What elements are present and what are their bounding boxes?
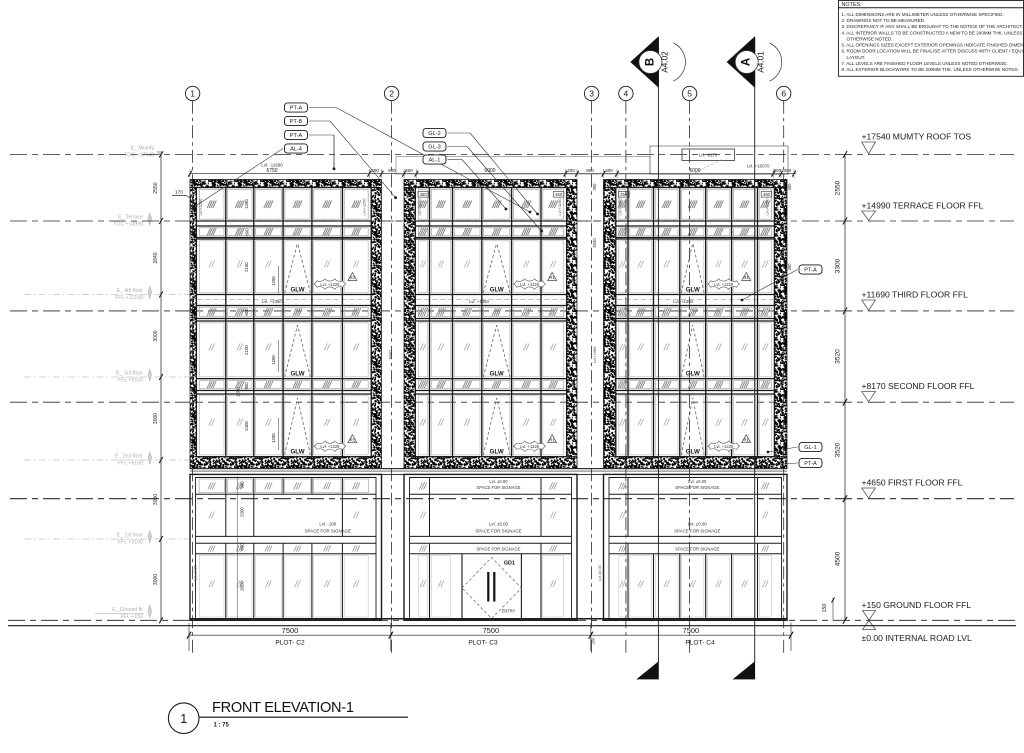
svg-text:6000: 6000 bbox=[689, 168, 700, 174]
svg-text:Lvl. ±0.00: Lvl. ±0.00 bbox=[688, 522, 708, 527]
svg-text:Lvl.+1250: Lvl.+1250 bbox=[362, 198, 367, 216]
svg-text:±0.00 INTERNAL ROAD LVL: ±0.00 INTERNAL ROAD LVL bbox=[862, 633, 972, 643]
svg-text:2400: 2400 bbox=[244, 421, 249, 431]
svg-text:E_ Mumty: E_ Mumty bbox=[131, 146, 155, 152]
svg-text:2. DRAWINGS NOT TO BE MEASURED: 2. DRAWINGS NOT TO BE MEASURED. bbox=[842, 18, 926, 23]
svg-text:+14990 TERRACE FLOOR FFL: +14990 TERRACE FLOOR FFL bbox=[862, 201, 984, 211]
svg-text:Lvl. +1225: Lvl. +1225 bbox=[714, 444, 734, 449]
svg-text:300: 300 bbox=[567, 168, 575, 173]
svg-text:FRONT ELEVATION-1: FRONT ELEVATION-1 bbox=[212, 700, 354, 716]
svg-text:2100: 2100 bbox=[244, 345, 249, 355]
svg-text:Lvl. +1225: Lvl. +1225 bbox=[320, 444, 340, 449]
svg-text:170: 170 bbox=[175, 190, 183, 196]
svg-text:300: 300 bbox=[787, 183, 792, 191]
svg-text:1280: 1280 bbox=[236, 387, 241, 397]
svg-text:7. ALL LEVELS ARE FINISHED FLO: 7. ALL LEVELS ARE FINISHED FLOOR LEVELS … bbox=[842, 61, 1008, 66]
svg-text:Lvl. +1350: Lvl. +1350 bbox=[469, 299, 490, 304]
svg-text:3: 3 bbox=[589, 89, 594, 99]
svg-text:450: 450 bbox=[620, 192, 628, 197]
svg-text:GL-3: GL-3 bbox=[428, 145, 440, 151]
svg-text:2: 2 bbox=[389, 89, 394, 99]
svg-text:450: 450 bbox=[420, 192, 428, 197]
svg-text:GLW: GLW bbox=[490, 287, 504, 294]
svg-text:7500: 7500 bbox=[482, 626, 499, 635]
svg-text:R1: R1 bbox=[743, 275, 749, 280]
svg-text:FFL +3150: FFL +3150 bbox=[118, 540, 143, 546]
svg-text:E_ 3rd floor: E_ 3rd floor bbox=[116, 371, 143, 377]
svg-text:SPACE FOR SIGNAGE: SPACE FOR SIGNAGE bbox=[476, 485, 520, 490]
svg-text:ENTRY: ENTRY bbox=[502, 609, 516, 614]
svg-text:PT-A: PT-A bbox=[290, 106, 303, 112]
svg-text:AL-4: AL-4 bbox=[290, 147, 302, 153]
svg-text:1250: 1250 bbox=[271, 433, 276, 443]
svg-text:FFL +6150: FFL +6150 bbox=[118, 461, 143, 467]
svg-text:3520: 3520 bbox=[835, 349, 842, 364]
svg-text:Lvl. -11690: Lvl. -11690 bbox=[261, 163, 283, 168]
svg-text:R1: R1 bbox=[350, 275, 356, 280]
svg-text:3000: 3000 bbox=[153, 330, 159, 341]
svg-text:450: 450 bbox=[784, 168, 792, 173]
svg-text:2800: 2800 bbox=[240, 581, 245, 591]
svg-text:OTHERWISE NOTED.: OTHERWISE NOTED. bbox=[842, 36, 893, 41]
svg-text:+11690 THIRD FLOOR FFL: +11690 THIRD FLOOR FFL bbox=[862, 290, 969, 300]
svg-text:3000: 3000 bbox=[153, 413, 159, 424]
svg-text:E_ Terrace: E_ Terrace bbox=[118, 215, 143, 221]
svg-text:Lvl.+1250: Lvl.+1250 bbox=[198, 198, 203, 216]
svg-text:GLW: GLW bbox=[290, 287, 304, 294]
svg-text:+17540 MUMTY ROOF TOS: +17540 MUMTY ROOF TOS bbox=[862, 132, 972, 142]
svg-text:6. ROOM DOOR LOCATION WILL BE: 6. ROOM DOOR LOCATION WILL BE FINALISE A… bbox=[842, 49, 1024, 54]
svg-text:300: 300 bbox=[773, 168, 781, 173]
svg-text:Lvl.+1080: Lvl.+1080 bbox=[593, 347, 597, 364]
svg-text:Lvl. -100: Lvl. -100 bbox=[319, 522, 336, 527]
svg-text:Lvl. ±0.00: Lvl. ±0.00 bbox=[489, 522, 509, 527]
svg-text:Lvl.+1250: Lvl.+1250 bbox=[765, 198, 770, 216]
svg-text:4: 4 bbox=[624, 89, 629, 99]
svg-text:PT-A: PT-A bbox=[290, 133, 303, 139]
svg-text:3. DISCREPANCY IF ANY SHALL BE: 3. DISCREPANCY IF ANY SHALL BE BROUGHT T… bbox=[842, 24, 1024, 29]
svg-text:Lvl.±0.00: Lvl.±0.00 bbox=[194, 565, 198, 580]
svg-text:FFL +12150: FFL +12150 bbox=[115, 295, 143, 301]
svg-text:PT-B: PT-B bbox=[290, 119, 303, 125]
svg-text:600: 600 bbox=[240, 543, 245, 551]
svg-text:B: B bbox=[644, 58, 656, 66]
svg-text:E_ Ground flr: E_ Ground flr bbox=[112, 607, 143, 613]
svg-text:1250: 1250 bbox=[271, 355, 276, 365]
svg-text:GLW: GLW bbox=[686, 449, 700, 456]
svg-text:GLW: GLW bbox=[686, 371, 700, 378]
svg-text:GD1: GD1 bbox=[504, 561, 515, 567]
svg-text:Lvl. +1350: Lvl. +1350 bbox=[673, 299, 694, 304]
svg-text:GLW: GLW bbox=[290, 371, 304, 378]
svg-text:300: 300 bbox=[405, 168, 413, 173]
svg-text:8. ALL EXTERIOR BLOCKWORK TO B: 8. ALL EXTERIOR BLOCKWORK TO BE 200MM TH… bbox=[842, 67, 1019, 72]
svg-text:PLOT- C3: PLOT- C3 bbox=[468, 640, 498, 647]
svg-text:Lvl.+1250: Lvl.+1250 bbox=[417, 198, 422, 216]
svg-text:SPACE FOR SIGNAGE: SPACE FOR SIGNAGE bbox=[674, 529, 720, 534]
svg-text:Lvl. +1225: Lvl. +1225 bbox=[320, 282, 340, 287]
svg-text:600: 600 bbox=[244, 308, 249, 316]
svg-text:PT-A: PT-A bbox=[804, 461, 817, 467]
svg-text:7500: 7500 bbox=[683, 626, 700, 635]
svg-text:5: 5 bbox=[687, 89, 692, 99]
svg-text:R1: R1 bbox=[350, 437, 356, 442]
svg-text:Lvl. +1225: Lvl. +1225 bbox=[520, 444, 540, 449]
svg-text:GLW: GLW bbox=[686, 287, 700, 294]
svg-text:GL-2: GL-2 bbox=[428, 131, 440, 137]
svg-text:Lvl. ±0.00: Lvl. ±0.00 bbox=[489, 479, 508, 484]
svg-text:R1: R1 bbox=[549, 275, 555, 280]
svg-text:R1: R1 bbox=[743, 437, 749, 442]
svg-text:Lvl. +10070: Lvl. +10070 bbox=[747, 164, 770, 169]
svg-text:450: 450 bbox=[763, 192, 771, 197]
svg-text:2150: 2150 bbox=[244, 262, 249, 272]
svg-text:A4.01: A4.01 bbox=[757, 51, 766, 73]
svg-text:300: 300 bbox=[787, 263, 792, 271]
svg-text:1 : 75: 1 : 75 bbox=[214, 723, 230, 729]
svg-text:5. ALL OPENINGS SIZES EXCEPT E: 5. ALL OPENINGS SIZES EXCEPT EXTERIOR OP… bbox=[842, 43, 1024, 48]
svg-text:900: 900 bbox=[240, 481, 245, 489]
svg-text:+8170 SECOND FLOOR FFL: +8170 SECOND FLOOR FFL bbox=[862, 381, 975, 391]
svg-text:E_ 2nd floor: E_ 2nd floor bbox=[115, 454, 143, 460]
svg-text:PLOT- C4: PLOT- C4 bbox=[685, 640, 715, 647]
svg-text:2300: 2300 bbox=[240, 507, 245, 517]
svg-text:AL-1: AL-1 bbox=[429, 158, 441, 164]
svg-text:FFL +150: FFL +150 bbox=[121, 614, 143, 620]
svg-text:NOTES:: NOTES: bbox=[842, 2, 862, 8]
svg-text:1250: 1250 bbox=[271, 276, 276, 286]
svg-text:SPACE FOR SIGNAGE: SPACE FOR SIGNAGE bbox=[675, 485, 719, 490]
svg-text:GLW: GLW bbox=[290, 449, 304, 456]
svg-text:300: 300 bbox=[592, 183, 597, 191]
svg-text:FFL +9150: FFL +9150 bbox=[118, 378, 143, 384]
svg-text:1: 1 bbox=[190, 89, 195, 99]
svg-text:4040: 4040 bbox=[388, 350, 393, 360]
svg-text:Lvl. -9170: Lvl. -9170 bbox=[699, 152, 718, 157]
svg-text:2550: 2550 bbox=[153, 182, 159, 193]
svg-text:SPACE FOR SIGNAGE: SPACE FOR SIGNAGE bbox=[476, 547, 520, 552]
svg-text:600: 600 bbox=[245, 228, 250, 236]
svg-text:900: 900 bbox=[586, 168, 594, 173]
svg-text:GL-1: GL-1 bbox=[804, 445, 816, 451]
svg-text:LAYOUT.: LAYOUT. bbox=[842, 55, 866, 60]
svg-text:E_ 1st floor: E_ 1st floor bbox=[117, 533, 144, 539]
svg-text:1280: 1280 bbox=[244, 199, 249, 209]
svg-text:Lvl. ±0.00: Lvl. ±0.00 bbox=[688, 479, 707, 484]
svg-text:6000: 6000 bbox=[484, 168, 495, 174]
svg-text:GLW: GLW bbox=[490, 449, 504, 456]
svg-text:SPACE FOR SIGNAGE: SPACE FOR SIGNAGE bbox=[475, 529, 521, 534]
svg-text:4040: 4040 bbox=[592, 238, 597, 248]
svg-text:3520: 3520 bbox=[835, 442, 842, 457]
svg-text:1. ALL DIMENSIONS ARE IN MILLI: 1. ALL DIMENSIONS ARE IN MILLIMETER UNLE… bbox=[842, 12, 1004, 17]
svg-text:SPACE FOR SIGNAGE: SPACE FOR SIGNAGE bbox=[305, 529, 351, 534]
svg-text:900: 900 bbox=[388, 168, 396, 173]
svg-text:TOC +17540: TOC +17540 bbox=[124, 153, 154, 159]
svg-text:Lvl. +1225: Lvl. +1225 bbox=[520, 282, 540, 287]
svg-text:7500: 7500 bbox=[282, 626, 299, 635]
svg-text:250: 250 bbox=[591, 637, 596, 645]
svg-text:PLOT- C2: PLOT- C2 bbox=[275, 640, 305, 647]
svg-text:4500: 4500 bbox=[835, 551, 842, 566]
svg-text:+4650 FIRST FLOOR FFL: +4650 FIRST FLOOR FFL bbox=[862, 478, 963, 488]
svg-text:Lvl.+1250: Lvl.+1250 bbox=[557, 198, 562, 216]
svg-text:1: 1 bbox=[180, 711, 187, 726]
svg-text:6: 6 bbox=[781, 89, 786, 99]
svg-text:GLW: GLW bbox=[490, 371, 504, 378]
svg-text:4. ALL INTERIOR WALLS TO BE CO: 4. ALL INTERIOR WALLS TO BE CONSTRUCTED … bbox=[842, 30, 1023, 35]
svg-text:Lvl.±0.00: Lvl.±0.00 bbox=[598, 565, 602, 580]
svg-text:2550: 2550 bbox=[835, 180, 842, 195]
svg-text:900: 900 bbox=[244, 382, 249, 390]
svg-text:2840: 2840 bbox=[153, 252, 159, 263]
svg-text:TOC +14990: TOC +14990 bbox=[113, 222, 143, 228]
svg-text:Lvl. +1350: Lvl. +1350 bbox=[262, 299, 283, 304]
svg-text:6750: 6750 bbox=[266, 168, 277, 174]
svg-text:R1: R1 bbox=[549, 437, 555, 442]
svg-text:PT-A: PT-A bbox=[804, 268, 817, 274]
svg-text:150: 150 bbox=[822, 604, 828, 613]
svg-text:Lvl. +1225: Lvl. +1225 bbox=[714, 282, 734, 287]
svg-text:+150 GROUND FLOOR FFL: +150 GROUND FLOOR FFL bbox=[862, 600, 972, 610]
svg-text:300: 300 bbox=[605, 168, 613, 173]
svg-text:3000: 3000 bbox=[153, 494, 159, 505]
svg-text:E_ 4th floor: E_ 4th floor bbox=[116, 288, 143, 294]
svg-text:Lvl.+1250: Lvl.+1250 bbox=[618, 198, 623, 216]
svg-text:A4.02: A4.02 bbox=[660, 51, 669, 73]
svg-text:SPACE FOR SIGNAGE: SPACE FOR SIGNAGE bbox=[675, 547, 719, 552]
svg-text:3300: 3300 bbox=[835, 258, 842, 273]
svg-text:3000: 3000 bbox=[153, 574, 159, 585]
svg-text:450: 450 bbox=[555, 192, 563, 197]
svg-text:A: A bbox=[741, 58, 753, 66]
